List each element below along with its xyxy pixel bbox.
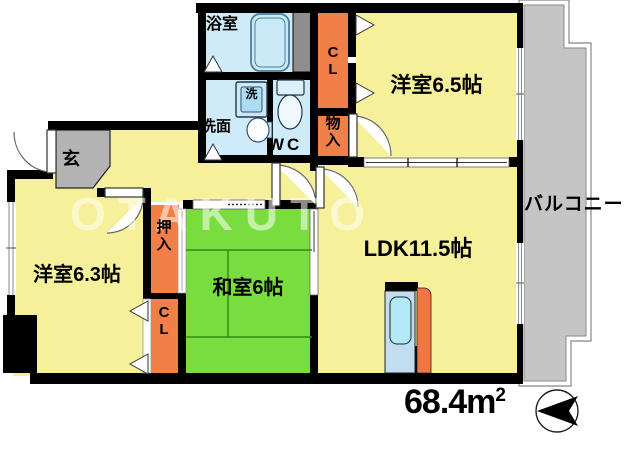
wall-entrance-top xyxy=(48,121,198,130)
oshiire-floor xyxy=(149,205,179,295)
toilet-icon xyxy=(277,80,304,129)
wall-japanese-right-lower xyxy=(310,295,318,373)
gray-shaft xyxy=(293,8,311,72)
wall-wet-column-right xyxy=(310,3,318,163)
wall-bath-bottom xyxy=(202,72,314,80)
kitchen-unit-icon xyxy=(385,288,431,373)
balcony-area xyxy=(519,0,591,386)
fusuma-japanese-east xyxy=(310,209,318,295)
closet-top-floor xyxy=(318,10,348,108)
oshiire-front xyxy=(178,209,186,293)
closet-top-notch xyxy=(348,57,356,63)
japanese-room-floor xyxy=(186,205,312,374)
kitchen-top-bar xyxy=(385,282,418,291)
floor-area-superscript: 2 xyxy=(495,385,506,406)
sliding-door-wr1-ldk xyxy=(364,158,509,167)
wall-wr1-bottom-left xyxy=(348,157,364,167)
washing-machine-icon xyxy=(236,82,267,117)
pillar-block xyxy=(3,315,37,373)
wall-oshiire-left xyxy=(143,200,151,295)
closet-left-floor xyxy=(149,296,179,373)
window-right-lower xyxy=(516,243,524,324)
entrance-door xyxy=(14,130,56,173)
fusuma-japanese-top xyxy=(193,200,265,209)
window-right-upper xyxy=(516,48,524,140)
wall-closet-storage-divider xyxy=(312,108,352,116)
wall-japanese-top-a xyxy=(183,200,193,209)
storage-top-floor xyxy=(318,114,348,158)
wall-washroom-wc-divider xyxy=(267,76,273,160)
floor-area-label: 68.4m2 xyxy=(404,383,506,422)
wall-top xyxy=(196,3,523,13)
floor-area-value: 68.4m xyxy=(404,383,495,421)
washbasin-icon xyxy=(247,118,272,142)
wall-closet-left-right xyxy=(178,293,186,373)
window-left xyxy=(6,202,16,295)
wall-bath-left xyxy=(198,3,206,163)
wall-wr1-bottom-right xyxy=(509,157,523,167)
floorplan-drawing xyxy=(0,0,640,449)
compass-icon xyxy=(536,390,578,432)
floorplan-page: OTAKUTO 浴室 C L 洋室6.5帖 物 入 洗 洗面 WC バルコニー … xyxy=(0,0,640,449)
bathtub-icon xyxy=(251,14,289,71)
